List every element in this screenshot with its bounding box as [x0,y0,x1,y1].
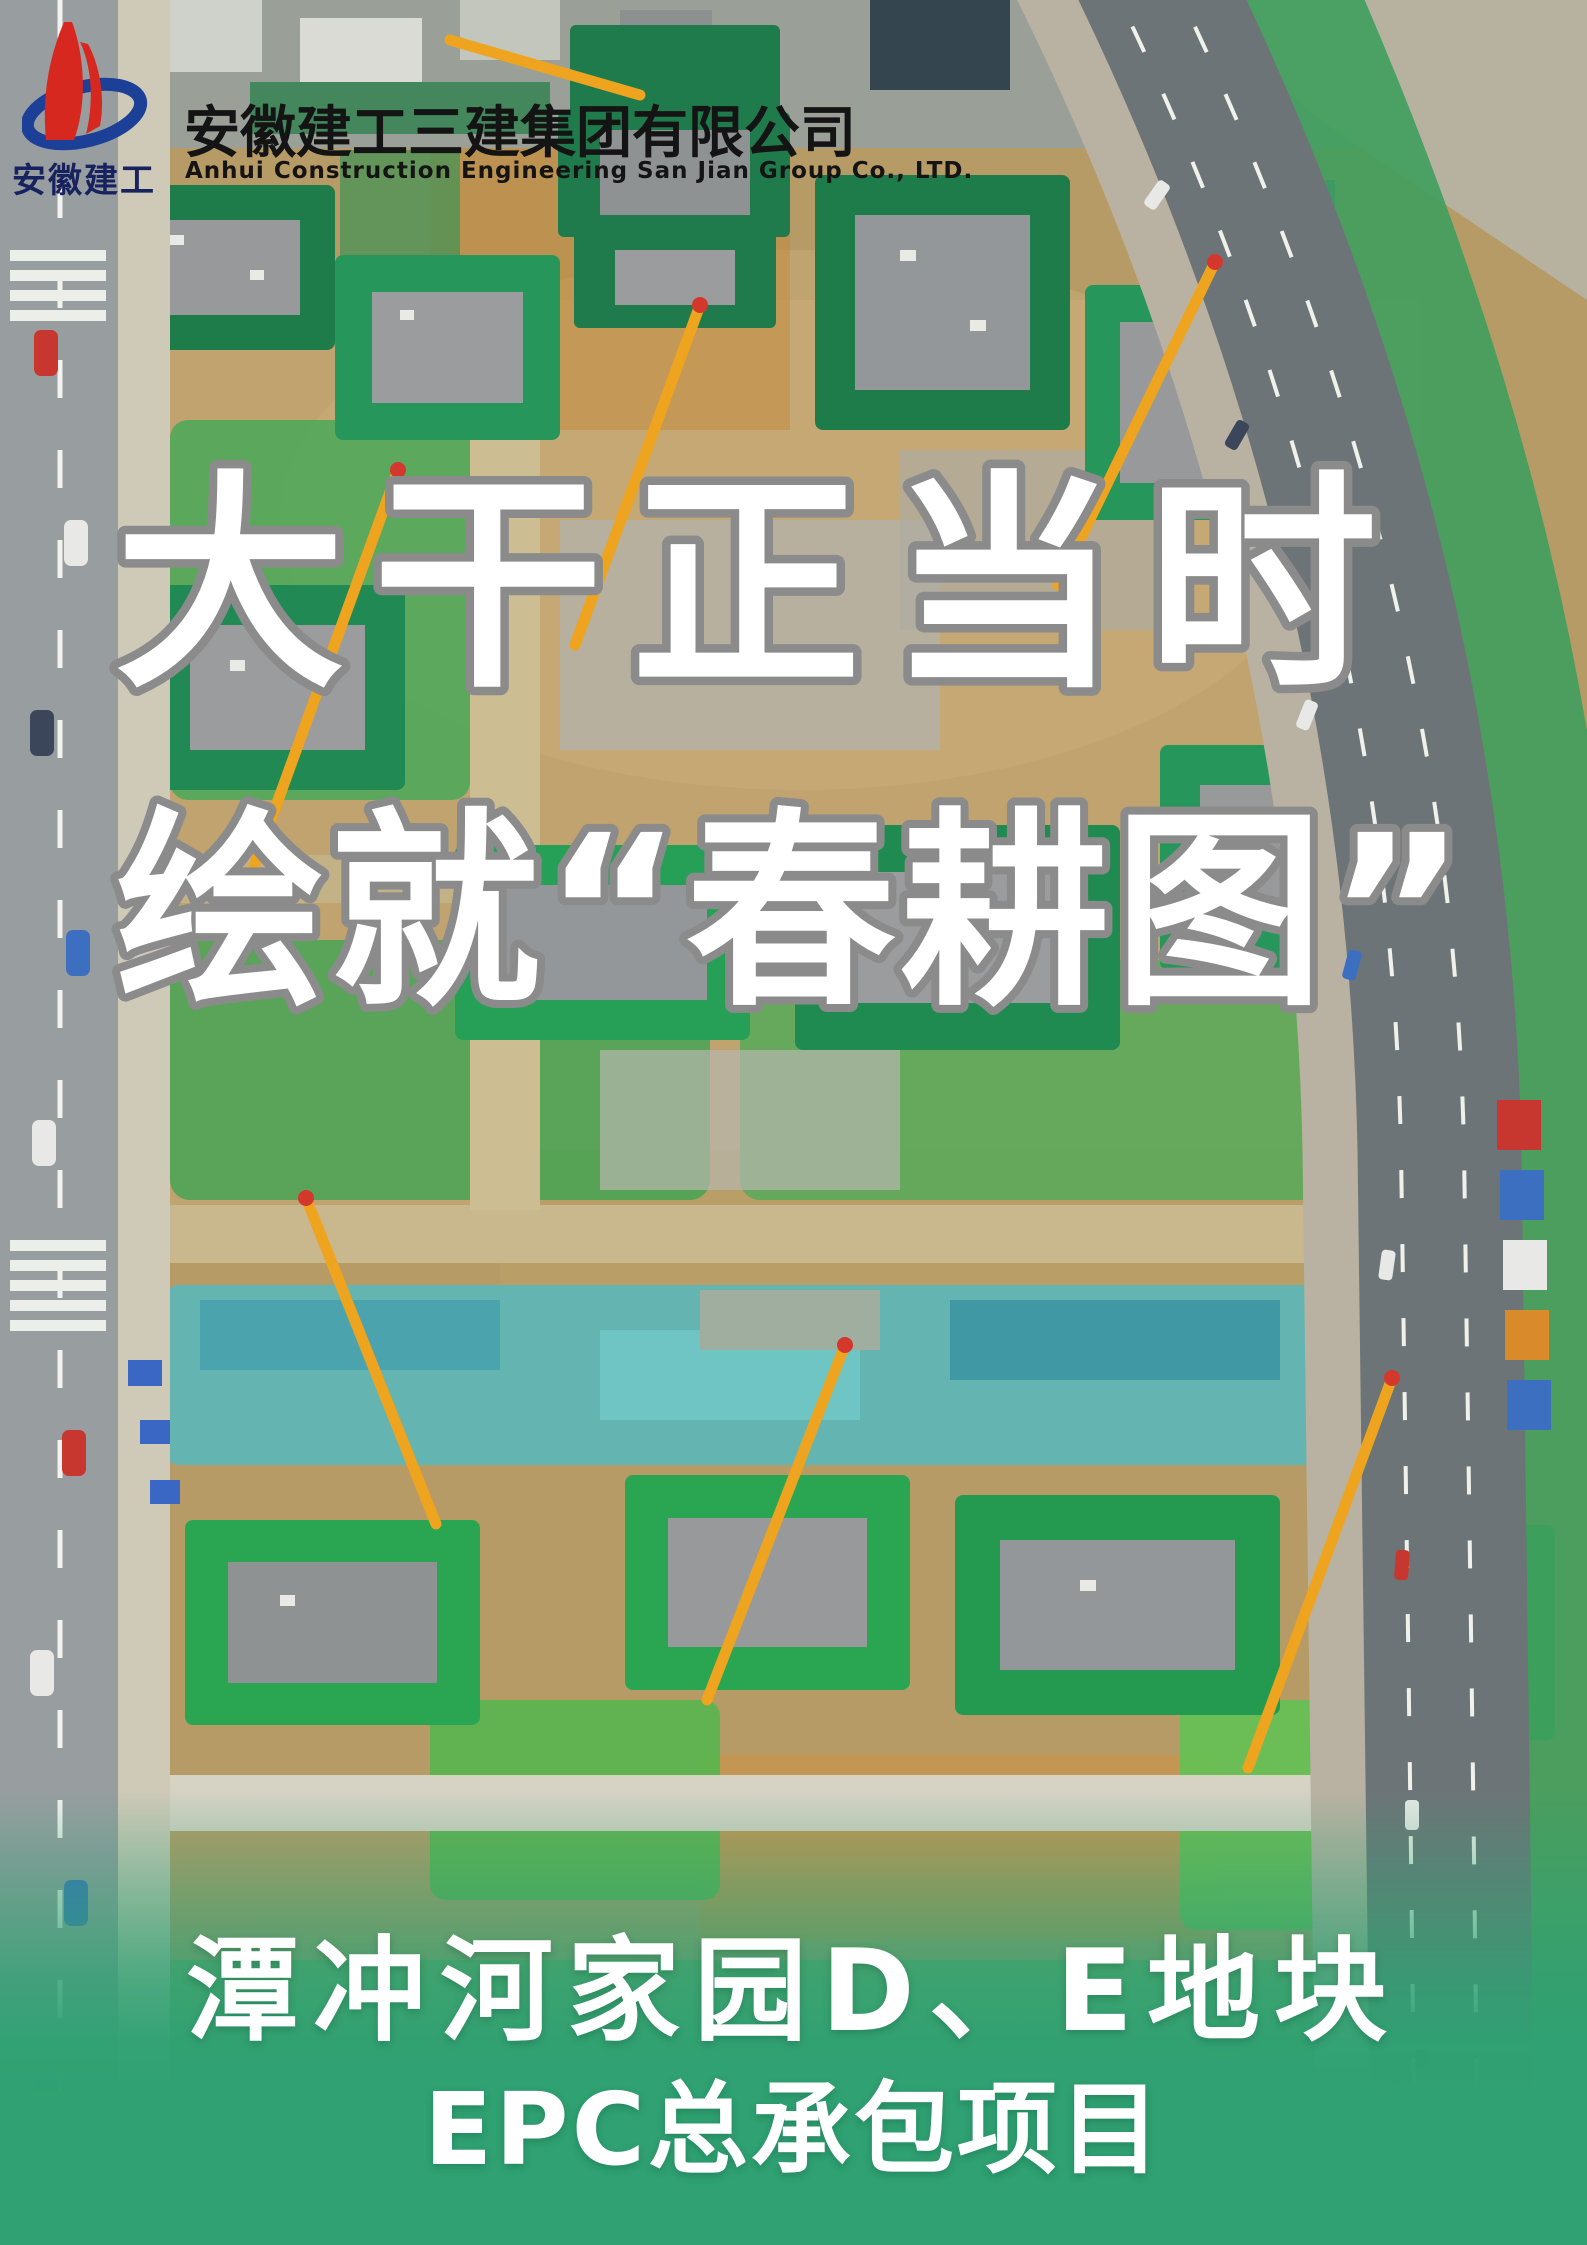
logo-swoosh [22,74,147,154]
headline-line1: 大干正当时 [115,453,1405,720]
headline-line2-wrap: 绘就“春耕图” [0,760,1587,1080]
project-type: EPC总承包项目 [424,2080,1163,2180]
brand-header: 安徽建工 安徽建工三建集团有限公司 Anhui Construction Eng… [0,0,1587,220]
company-logo-icon [22,22,152,157]
company-name-en: Anhui Construction Engineering San Jian … [185,158,973,184]
headline-line1-wrap: 大干正当时 [0,400,1587,720]
poster: 安徽建工 安徽建工三建集团有限公司 Anhui Construction Eng… [0,0,1587,2245]
company-name-cn: 安徽建工三建集团有限公司 [184,88,856,169]
project-name: 潭冲河家园D、E地块 [186,1935,1401,2048]
footer-band: 潭冲河家园D、E地块 EPC总承包项目 [0,1790,1587,2245]
headline-line2: 绘就“春耕图” [116,790,1470,1035]
logo-caption: 安徽建工 [8,153,160,202]
logo-mark-a [45,22,83,140]
